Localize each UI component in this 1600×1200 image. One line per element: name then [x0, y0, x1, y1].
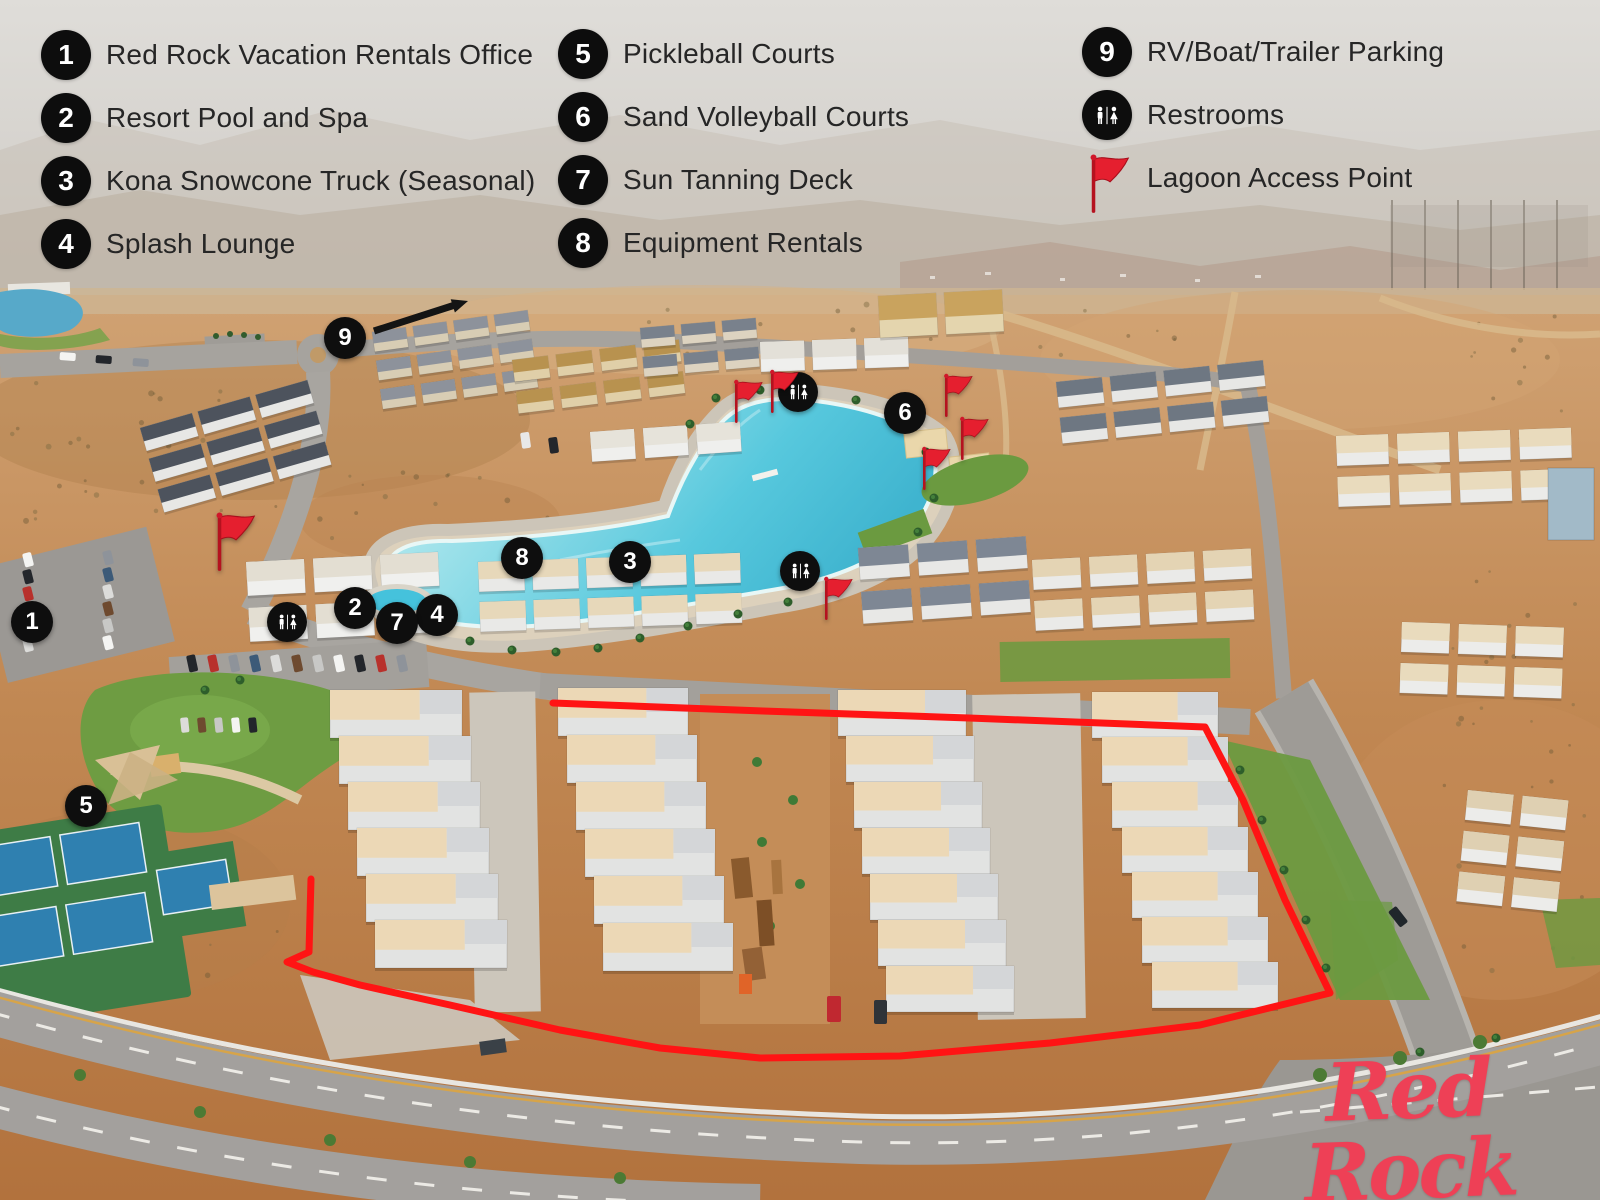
map-marker-8: 8	[501, 537, 543, 579]
legend-item-8: 8 Equipment Rentals	[558, 218, 909, 268]
lagoon-access-flag-icon	[1082, 153, 1132, 203]
map-marker-1: 1	[11, 601, 53, 643]
legend-item-3: 3 Kona Snowcone Truck (Seasonal)	[41, 156, 535, 206]
legend-item-2: 2 Resort Pool and Spa	[41, 93, 535, 143]
map-marker-9: 9	[324, 317, 366, 359]
legend-item-7: 7 Sun Tanning Deck	[558, 155, 909, 205]
map-restrooms-marker-3	[780, 551, 820, 591]
legend-label: Lagoon Access Point	[1147, 162, 1412, 194]
legend-label: Splash Lounge	[106, 228, 295, 260]
legend-label: Resort Pool and Spa	[106, 102, 368, 134]
map-restrooms-marker-2	[267, 602, 307, 642]
legend-number-badge: 6	[558, 92, 608, 142]
legend-label: Kona Snowcone Truck (Seasonal)	[106, 165, 535, 197]
legend-label: RV/Boat/Trailer Parking	[1147, 36, 1444, 68]
legend-item-5: 5 Pickleball Courts	[558, 29, 909, 79]
legend-number-badge: 2	[41, 93, 91, 143]
legend-item-1: 1 Red Rock Vacation Rentals Office	[41, 30, 535, 80]
legend-number-badge: 9	[1082, 27, 1132, 77]
restrooms-icon	[1082, 90, 1132, 140]
legend-label: Sand Volleyball Courts	[623, 101, 909, 133]
lagoon-access-flag-1	[211, 511, 257, 574]
map-marker-6: 6	[884, 392, 926, 434]
map-marker-3: 3	[609, 541, 651, 583]
legend-number-badge: 3	[41, 156, 91, 206]
legend-column-2: 5 Pickleball Courts 6 Sand Volleyball Co…	[558, 29, 909, 281]
legend-label: Restrooms	[1147, 99, 1284, 131]
map-marker-2: 2	[334, 587, 376, 629]
brand-logo: Red Rock VACATION RENTALS®	[1229, 1044, 1590, 1200]
legend-item-restrooms: Restrooms	[1082, 90, 1444, 140]
legend-number-badge: 7	[558, 155, 608, 205]
legend-column-1: 1 Red Rock Vacation Rentals Office 2 Res…	[41, 30, 535, 282]
legend-label: Red Rock Vacation Rentals Office	[106, 39, 533, 71]
lagoon-access-flag-7	[820, 576, 854, 622]
map-marker-5: 5	[65, 785, 107, 827]
legend-number-badge: 5	[558, 29, 608, 79]
legend-label: Pickleball Courts	[623, 38, 835, 70]
brand-logo-script: Red Rock	[1229, 1044, 1589, 1200]
lagoon-access-flag-5	[956, 416, 990, 462]
legend-number-badge: 4	[41, 219, 91, 269]
legend-item-lagoon-access: Lagoon Access Point	[1082, 153, 1444, 203]
legend-label: Equipment Rentals	[623, 227, 863, 259]
map-legend: 1 Red Rock Vacation Rentals Office 2 Res…	[0, 0, 1600, 285]
map-marker-4: 4	[416, 594, 458, 636]
resort-map-image: 1 Red Rock Vacation Rentals Office 2 Res…	[0, 0, 1600, 1200]
legend-label: Sun Tanning Deck	[623, 164, 853, 196]
lagoon-access-flag-3	[766, 369, 800, 415]
legend-column-3: 9 RV/Boat/Trailer Parking Restrooms Lago…	[1082, 27, 1444, 216]
map-marker-7: 7	[376, 602, 418, 644]
lagoon-access-flag-4	[940, 373, 974, 419]
legend-item-6: 6 Sand Volleyball Courts	[558, 92, 909, 142]
lagoon-access-flag-6	[918, 446, 952, 492]
legend-item-4: 4 Splash Lounge	[41, 219, 535, 269]
legend-number-badge: 8	[558, 218, 608, 268]
legend-item-9: 9 RV/Boat/Trailer Parking	[1082, 27, 1444, 77]
legend-number-badge: 1	[41, 30, 91, 80]
lagoon-access-flag-2	[730, 379, 764, 425]
